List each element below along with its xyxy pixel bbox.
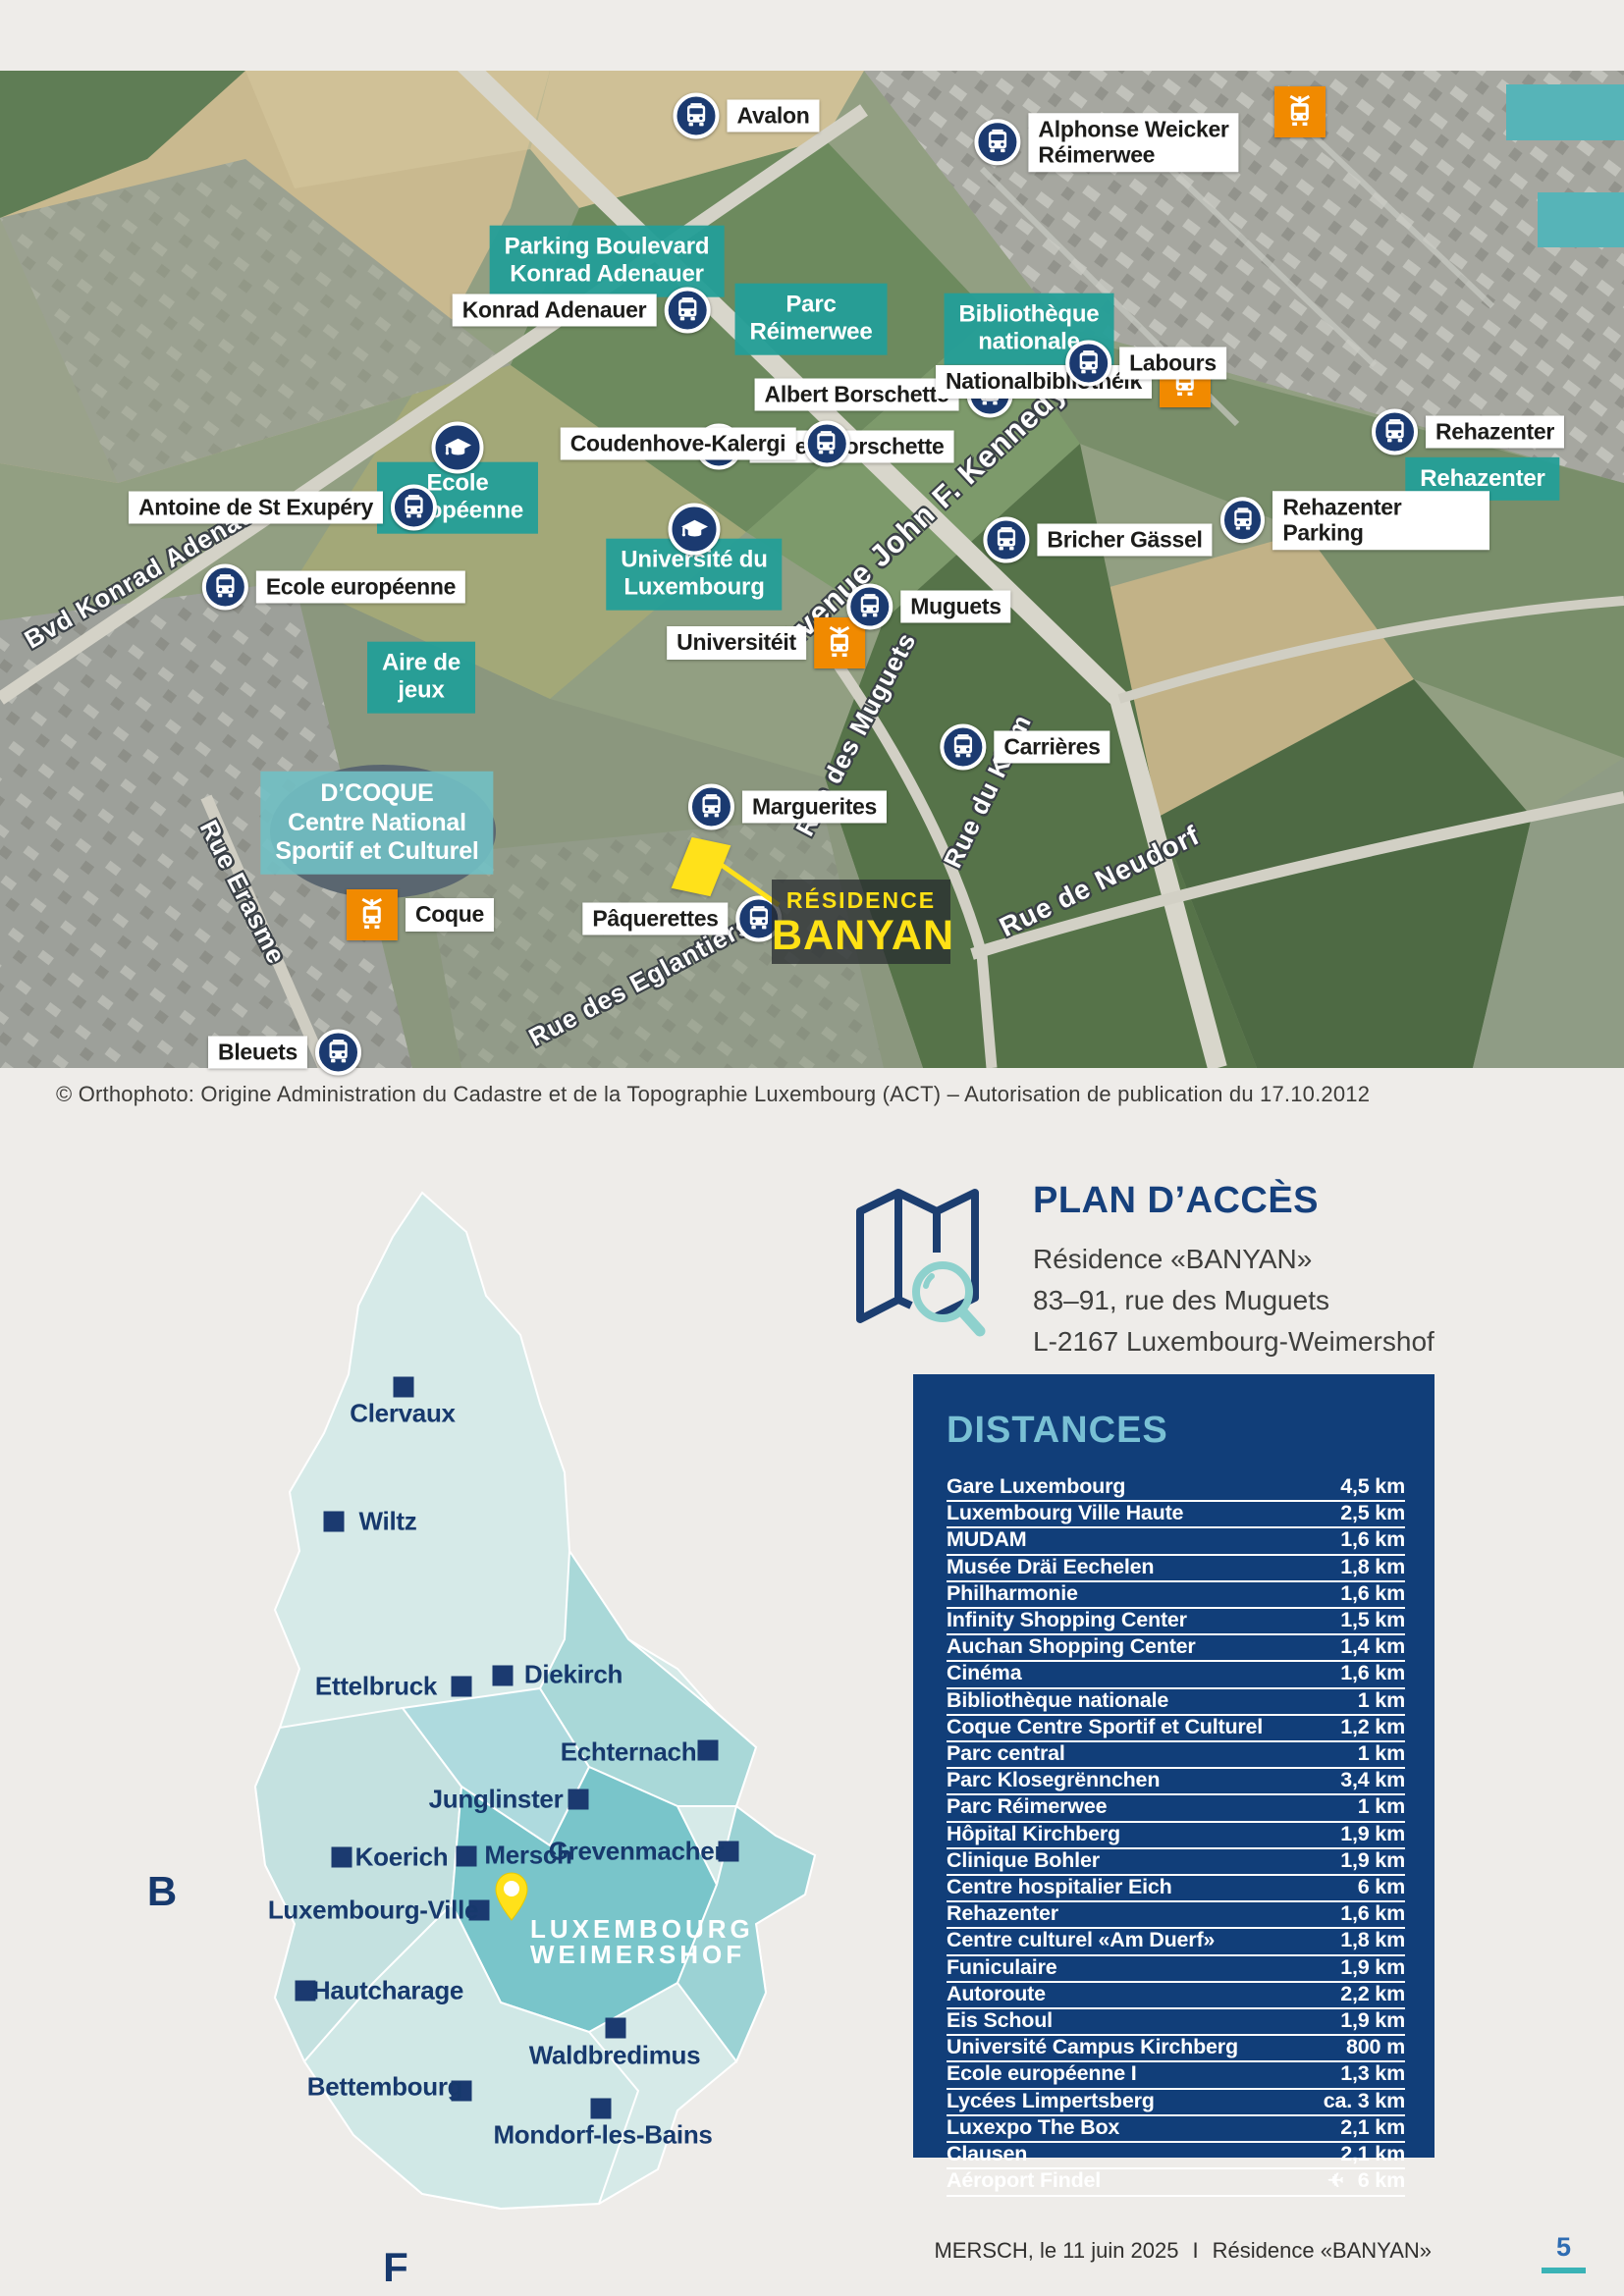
distance-row: Hôpital Kirchberg1,9 km	[947, 1823, 1405, 1849]
distance-label: Funiculaire	[947, 1956, 1057, 1979]
distance-row: Luxembourg Ville Haute2,5 km	[947, 1502, 1405, 1528]
distance-label: Infinity Shopping Center	[947, 1609, 1187, 1631]
distance-km: 1,8 km	[1340, 1556, 1405, 1578]
distances-panel: DISTANCES Gare Luxembourg4,5 kmLuxembour…	[913, 1374, 1435, 2158]
distance-label: Parc central	[947, 1742, 1065, 1765]
distance-value: 1,9 km	[1340, 1849, 1405, 1872]
distance-label: Musée Dräi Eechelen	[947, 1556, 1154, 1578]
map-copyright: © Orthophoto: Origine Administration du …	[56, 1082, 1370, 1107]
distance-row: Université Campus Kirchberg800 m	[947, 2036, 1405, 2062]
distance-km: 2,1 km	[1340, 2143, 1405, 2165]
distance-value: 2,1 km	[1340, 2143, 1405, 2165]
distance-row: Parc Réimerwee1 km	[947, 1795, 1405, 1822]
distance-km: 1,9 km	[1340, 1823, 1405, 1845]
distance-km: 1,9 km	[1340, 1849, 1405, 1872]
corner-bar	[1538, 192, 1624, 247]
distance-km: 1 km	[1358, 1689, 1405, 1712]
access-address-line3: L-2167 Luxembourg-Weimershof	[1033, 1321, 1435, 1362]
distance-label: Ecole européenne I	[947, 2062, 1137, 2085]
distance-km: ca. 3 km	[1324, 2090, 1405, 2112]
distance-value: 1,9 km	[1340, 1956, 1405, 1979]
map-magnifier-icon	[852, 1182, 988, 1347]
distance-km: 6 km	[1358, 2169, 1405, 2192]
distance-row: Funiculaire1,9 km	[947, 1956, 1405, 1983]
distance-km: 1,4 km	[1340, 1635, 1405, 1658]
distance-km: 1,3 km	[1340, 2062, 1405, 2085]
distance-km: 1,6 km	[1340, 1582, 1405, 1605]
distance-row: Parc Klosegrënnchen3,4 km	[947, 1769, 1405, 1795]
distance-label: Coque Centre Sportif et Culturel	[947, 1716, 1263, 1738]
distance-km: 1,5 km	[1340, 1609, 1405, 1631]
distance-value: 2,5 km	[1340, 1502, 1405, 1524]
distance-label: Autoroute	[947, 1983, 1046, 2005]
distance-km: 1,6 km	[1340, 1902, 1405, 1925]
distance-value: 1 km	[1358, 1795, 1405, 1818]
distance-value: 1,9 km	[1340, 1823, 1405, 1845]
distance-label: Parc Réimerwee	[947, 1795, 1107, 1818]
distance-label: Auchan Shopping Center	[947, 1635, 1196, 1658]
distance-label: Centre culturel «Am Duerf»	[947, 1929, 1215, 1951]
distance-label: Lycées Limpertsberg	[947, 2090, 1155, 2112]
location-pin-icon	[494, 1871, 529, 1942]
distance-row: Clinique Bohler1,9 km	[947, 1849, 1405, 1876]
access-address-line2: 83–91, rue des Muguets	[1033, 1280, 1435, 1321]
distance-value: 1,9 km	[1340, 2009, 1405, 2032]
distance-label: Gare Luxembourg	[947, 1475, 1125, 1498]
distance-label: MUDAM	[947, 1528, 1026, 1551]
distance-label: Luxembourg Ville Haute	[947, 1502, 1183, 1524]
distance-km: 1 km	[1358, 1795, 1405, 1818]
distance-value: ✈6 km	[1327, 2169, 1405, 2193]
distance-value: 1 km	[1358, 1689, 1405, 1712]
distance-row: Lycées Limpertsbergca. 3 km	[947, 2090, 1405, 2116]
distance-km: 2,2 km	[1340, 1983, 1405, 2005]
distance-label: Université Campus Kirchberg	[947, 2036, 1238, 2058]
footer: MERSCH, le 11 juin 2025IRésidence «BANYA…	[934, 2238, 1432, 2264]
page-number-accent	[1542, 2268, 1586, 2273]
distances-title: DISTANCES	[947, 1410, 1405, 1452]
distance-row: Cinéma1,6 km	[947, 1662, 1405, 1688]
distance-row: Aéroport Findel✈6 km	[947, 2169, 1405, 2197]
distance-row: Rehazenter1,6 km	[947, 1902, 1405, 1929]
distance-value: ca. 3 km	[1324, 2090, 1405, 2112]
distance-row: Luxexpo The Box2,1 km	[947, 2116, 1405, 2143]
access-address: Résidence «BANYAN» 83–91, rue des Muguet…	[1033, 1239, 1435, 1362]
distance-label: Rehazenter	[947, 1902, 1058, 1925]
distance-row: MUDAM1,6 km	[947, 1528, 1405, 1555]
distance-km: 1,2 km	[1340, 1716, 1405, 1738]
brochure-page: Bvd Konrad AdenauerAvenue John F. Kenned…	[0, 0, 1624, 2296]
distance-value: 1,6 km	[1340, 1582, 1405, 1605]
distance-row: Ecole européenne I1,3 km	[947, 2062, 1405, 2089]
plane-icon: ✈	[1327, 2170, 1344, 2193]
distance-km: 2,1 km	[1340, 2116, 1405, 2139]
distance-value: 1,8 km	[1340, 1556, 1405, 1578]
distance-value: 1,8 km	[1340, 1929, 1405, 1951]
distance-km: 4,5 km	[1340, 1475, 1405, 1498]
highlight-location-label: LUXEMBOURG WEIMERSHOF	[530, 1916, 754, 1967]
distance-value: 1,5 km	[1340, 1609, 1405, 1631]
distance-km: 1,6 km	[1340, 1528, 1405, 1551]
distance-km: 1,9 km	[1340, 2009, 1405, 2032]
distance-km: 1,8 km	[1340, 1929, 1405, 1951]
distance-row: Eis Schoul1,9 km	[947, 2009, 1405, 2036]
distance-row: Centre hospitalier Eich6 km	[947, 1876, 1405, 1902]
corner-bar	[1506, 84, 1624, 140]
access-title: PLAN D’ACCÈS	[1033, 1180, 1319, 1222]
distance-label: Clinique Bohler	[947, 1849, 1100, 1872]
distance-value: 1,2 km	[1340, 1716, 1405, 1738]
distance-label: Eis Schoul	[947, 2009, 1053, 2032]
distance-row: Auchan Shopping Center1,4 km	[947, 1635, 1405, 1662]
distance-value: 6 km	[1358, 1876, 1405, 1898]
access-address-line1: Résidence «BANYAN»	[1033, 1239, 1435, 1280]
distance-row: Musée Dräi Eechelen1,8 km	[947, 1556, 1405, 1582]
distance-value: 1,4 km	[1340, 1635, 1405, 1658]
distance-value: 1,6 km	[1340, 1902, 1405, 1925]
footer-separator: I	[1193, 2238, 1199, 2263]
distance-km: 3,4 km	[1340, 1769, 1405, 1791]
distance-label: Clausen	[947, 2143, 1027, 2165]
distance-label: Centre hospitalier Eich	[947, 1876, 1172, 1898]
distance-value: 1 km	[1358, 1742, 1405, 1765]
distance-value: 2,2 km	[1340, 1983, 1405, 2005]
distance-row: Gare Luxembourg4,5 km	[947, 1475, 1405, 1502]
residence-callout: RÉSIDENCE BANYAN	[772, 880, 950, 964]
distance-value: 1,6 km	[1340, 1662, 1405, 1684]
distance-row: Clausen2,1 km	[947, 2143, 1405, 2169]
footer-doc-title: Résidence «BANYAN»	[1213, 2238, 1432, 2263]
distance-km: 1,6 km	[1340, 1662, 1405, 1684]
distance-row: Philharmonie1,6 km	[947, 1582, 1405, 1609]
distance-value: 2,1 km	[1340, 2116, 1405, 2139]
distance-km: 1 km	[1358, 1742, 1405, 1765]
distance-km: 1,9 km	[1340, 1956, 1405, 1979]
distance-label: Luxexpo The Box	[947, 2116, 1119, 2139]
distance-value: 3,4 km	[1340, 1769, 1405, 1791]
distance-row: Autoroute2,2 km	[947, 1983, 1405, 2009]
distance-row: Coque Centre Sportif et Culturel1,2 km	[947, 1716, 1405, 1742]
distance-label: Cinéma	[947, 1662, 1021, 1684]
residence-callout-line2: BANYAN	[772, 914, 950, 958]
distance-label: Bibliothèque nationale	[947, 1689, 1168, 1712]
distance-row: Centre culturel «Am Duerf»1,8 km	[947, 1929, 1405, 1955]
distance-label: Parc Klosegrënnchen	[947, 1769, 1160, 1791]
distance-label: Hôpital Kirchberg	[947, 1823, 1120, 1845]
distance-km: 2,5 km	[1340, 1502, 1405, 1524]
distance-value: 800 m	[1346, 2036, 1405, 2058]
distance-value: 1,3 km	[1340, 2062, 1405, 2085]
distance-km: 6 km	[1358, 1876, 1405, 1898]
residence-callout-line1: RÉSIDENCE	[772, 887, 950, 914]
distance-row: Bibliothèque nationale1 km	[947, 1689, 1405, 1716]
distance-label: Philharmonie	[947, 1582, 1078, 1605]
distance-value: 4,5 km	[1340, 1475, 1405, 1498]
luxembourg-country-map	[128, 1178, 844, 2296]
distances-rows: Gare Luxembourg4,5 kmLuxembourg Ville Ha…	[947, 1475, 1405, 2197]
distance-value: 1,6 km	[1340, 1528, 1405, 1551]
distance-km: 800 m	[1346, 2036, 1405, 2058]
footer-date-place: MERSCH, le 11 juin 2025	[934, 2238, 1178, 2263]
distance-label: Aéroport Findel	[947, 2169, 1101, 2192]
distance-row: Infinity Shopping Center1,5 km	[947, 1609, 1405, 1635]
distance-row: Parc central1 km	[947, 1742, 1405, 1769]
page-number: 5	[1556, 2232, 1571, 2263]
